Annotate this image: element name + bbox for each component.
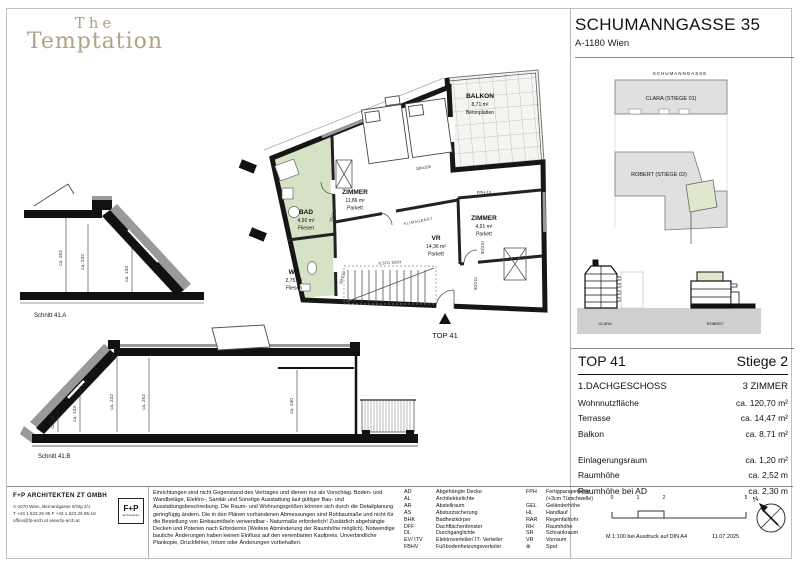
highlighted-floor <box>697 272 723 281</box>
room-area-wc: 2,75 m² <box>286 278 303 284</box>
legend-desc: Geländerhöhe <box>546 503 602 510</box>
legend-row: ADAbgehängte Decke <box>404 489 542 496</box>
room-label-bad: BAD <box>299 209 313 216</box>
firm-logo-sub: architekten <box>119 513 143 517</box>
dim-label: ca. 133 <box>72 406 78 422</box>
legend-abbr: AL <box>404 496 436 503</box>
neighbor-outline <box>621 272 643 308</box>
info-label: Wohnnutzfläche <box>578 398 639 408</box>
firm-block-divider <box>148 487 149 559</box>
fph-label: FPH-10 <box>477 190 492 195</box>
legend-desc: Fertigparapethöhe (+3cm Türschwelle) <box>546 489 602 503</box>
firm-block: F+P ARCHITEKTEN ZT GMBH A-1070 Wien, Ber… <box>13 492 146 524</box>
door-size-entry: 90/210 <box>473 277 478 290</box>
balcony-railing <box>360 400 416 434</box>
room-area-balkon: 8,71 m² <box>472 102 489 108</box>
scale-tick: 1 <box>637 495 640 501</box>
project-title: SCHUMANNGASSE 35 <box>575 15 794 35</box>
legend-row: ⊗Spot <box>526 544 602 551</box>
legend-row: SRSchrankraum <box>526 530 602 537</box>
legend-row: ARAbstellraum <box>404 503 542 510</box>
legend-abbr: GEL <box>526 503 546 510</box>
disclaimer-text: Einrichtungen sind nicht Gegenstand des … <box>153 490 396 548</box>
unit-label-plan: TOP 41 <box>432 331 458 340</box>
legend-abbr: RH <box>526 524 546 531</box>
legend-column-1: ADAbgehängte Decke ALArchitekturlichte A… <box>404 489 542 551</box>
elevation-clara <box>585 260 621 308</box>
legend-abbr: FBHV <box>404 544 436 551</box>
street-label: SCHUMANNGASSE <box>653 71 708 76</box>
building-clara: CLARA (STIEGE 01) <box>615 80 727 114</box>
unit-number: TOP 41 <box>578 353 626 369</box>
legend-row: RHRaumhöhe <box>526 524 602 531</box>
legend-desc: Regenfallrohr <box>546 517 602 524</box>
info-label: Balkon <box>578 429 604 439</box>
scale-tick: 2 <box>663 495 666 501</box>
scale-note: M 1:100 bei Ausdruck auf DIN A4 <box>606 534 687 540</box>
legend-row: EV/ ITVElektroverteiler/ IT- Verteiler <box>404 537 542 544</box>
dim-label: ca. 133 <box>124 266 130 282</box>
legend-row: ASAbsturzsicherung <box>404 510 542 517</box>
unit-info-panel: TOP 41 Stiege 2 1.DACHGESCHOSS 3 ZIMMER … <box>578 353 788 496</box>
room-label-vr: VR <box>431 235 440 242</box>
legend-abbr: AR <box>404 503 436 510</box>
plan-date: 11.07.2025 <box>712 534 739 540</box>
legend-column-2: FPHFertigparapethöhe (+3cm Türschwelle) … <box>526 489 602 551</box>
room-floor-bad: Fliesen <box>298 226 314 232</box>
elevation-clara-label: CLARA <box>598 321 612 326</box>
room-area-zimmer2: 4,91 m² <box>476 224 493 230</box>
legend-abbr: AD <box>404 489 436 496</box>
firm-logo: F+P architekten <box>118 498 144 524</box>
room-area-vr: 14,36 m² <box>426 244 446 250</box>
legend-desc: Handlauf <box>546 510 602 517</box>
legend-abbr: EV/ ITV <box>404 537 436 544</box>
section-b-caption: Schnitt 41.B <box>38 454 70 460</box>
floor-label: 1.DACHGESCHOSS <box>578 381 667 392</box>
door-size-zimmer: 80/210 <box>480 241 485 254</box>
room-floor-balkon: Betonplatten <box>466 110 494 116</box>
room-count: 3 ZIMMER <box>743 381 788 392</box>
dim-label: ca. 230 <box>289 398 295 414</box>
legend-abbr: HL <box>526 510 546 517</box>
legend-desc: Vorraum <box>546 537 602 544</box>
room-floor-wc: Fliesen <box>286 286 302 292</box>
scale-bar: 0 1 2 5 <box>600 490 760 524</box>
pillar <box>239 159 257 173</box>
legend-desc: Raumhöhe <box>546 524 602 531</box>
elevation-robert <box>691 272 755 308</box>
legend-desc: Spot <box>546 544 602 551</box>
info-value: ca. 1,20 m² <box>745 455 788 465</box>
elevation-robert-label: ROBERT <box>707 321 724 326</box>
project-address: A-1180 Wien <box>575 38 794 49</box>
project-header: SCHUMANNGASSE 35 A-1180 Wien <box>575 15 794 58</box>
site-plan: SCHUMANNGASSE CLARA (STIEGE 01) ROBERT (… <box>575 66 793 244</box>
room-floor-vr: Parkett <box>428 252 444 258</box>
room-label-zimmer1: ZIMMER <box>342 189 368 196</box>
info-value: ca. 120,70 m² <box>736 398 788 408</box>
floor-plan-drawing: BALKON 8,71 m² Betonplatten RAR Ø <box>232 62 570 354</box>
legend-row: GELGeländerhöhe <box>526 503 602 510</box>
info-row: Wohnnutzfläche ca. 120,70 m² <box>578 398 788 408</box>
section-b-drawing: ca. 60 ca. 133 ca. 232 ca. 252 ca. 230 S… <box>10 322 430 462</box>
entry-triangle-icon <box>439 313 451 324</box>
scale-tick: 0 <box>611 495 614 501</box>
info-label: Raumhöhe <box>578 470 620 480</box>
room-area-bad: 4,90 m² <box>298 218 315 224</box>
brand-logo: The Temptation <box>14 14 176 54</box>
north-label: N <box>752 495 759 503</box>
legend-row: VRVorraum <box>526 537 602 544</box>
dim-label: ca. 252 <box>141 394 147 410</box>
info-value: ca. 14,47 m² <box>741 413 788 423</box>
info-value: ca. 2,52 m <box>748 470 788 480</box>
section-a-caption: Schnitt 41.A <box>34 313 66 319</box>
firm-logo-main: F+P <box>119 504 143 513</box>
info-row: Balkon ca. 8,71 m² <box>578 429 788 439</box>
legend-abbr: SR <box>526 530 546 537</box>
info-label: Einlagerungsraum <box>578 455 647 465</box>
legend-abbr: DL <box>404 530 436 537</box>
north-compass-icon: N <box>750 492 790 538</box>
legend-abbr: FPH <box>526 489 546 503</box>
legend-abbr: AS <box>404 510 436 517</box>
building-robert-label: ROBERT (STIEGE 02) <box>631 172 687 178</box>
plan-sheet: The Temptation SCHUMANNGASSE 35 A-1180 W… <box>0 0 800 566</box>
legend-row: DLDurchganglichte <box>404 530 542 537</box>
legend-row: RARRegenfallrohr <box>526 517 602 524</box>
legend-row: ALArchitekturlichte <box>404 496 542 503</box>
dim-label: ca. 232 <box>109 394 115 410</box>
info-panel-top-rule <box>571 348 794 349</box>
room-floor-zimmer1: Parkett <box>347 206 363 212</box>
room-area-zimmer1: 11,86 m² <box>345 198 365 204</box>
stiege-label: Stiege 2 <box>737 353 788 369</box>
room-floor-zimmer2: Parkett <box>476 232 492 238</box>
right-column-divider <box>570 8 571 559</box>
legend-abbr: BHK <box>404 517 436 524</box>
info-row: Raumhöhe ca. 2,52 m <box>578 470 788 480</box>
legend-abbr: DFF <box>404 524 436 531</box>
legend-row: FBHVFußbodenheizungsverteiler <box>404 544 542 551</box>
legend-desc: Schrankraum <box>546 530 602 537</box>
legend-abbr: VR <box>526 537 546 544</box>
room-label-wc: WC <box>289 269 300 276</box>
spot-symbol: ⊗ <box>526 544 546 551</box>
brand-logo-line2: Temptation <box>14 29 176 54</box>
legend-row: BHKBadheizkörper <box>404 517 542 524</box>
scale-tick: 5 <box>745 495 748 501</box>
legend-row: DFFDachflächenfenster <box>404 524 542 531</box>
building-robert: ROBERT (STIEGE 02) <box>615 152 727 244</box>
legend-row: FPHFertigparapethöhe (+3cm Türschwelle) <box>526 489 602 503</box>
section-a-drawing: ca. 252 ca. 232 ca. 133 Schnitt 41.A <box>8 172 218 322</box>
dim-label: ca. 60 <box>50 415 56 428</box>
info-value: ca. 8,71 m² <box>745 429 788 439</box>
info-row: Einlagerungsraum ca. 1,20 m² <box>578 455 788 465</box>
room-label-zimmer2: ZIMMER <box>471 215 497 222</box>
dim-label: ca. 232 <box>80 254 86 270</box>
info-label: Terrasse <box>578 413 611 423</box>
legend-row: HLHandlauf <box>526 510 602 517</box>
info-row: Terrasse ca. 14,47 m² <box>578 413 788 423</box>
legend-abbr: RAR <box>526 517 546 524</box>
building-clara-label: CLARA (STIEGE 01) <box>645 96 696 102</box>
pillar <box>249 227 267 241</box>
highlighted-unit <box>686 180 717 212</box>
elevation-diagram: CLARA ROBERT <box>575 244 793 348</box>
room-label-balkon: BALKON <box>466 93 494 100</box>
dim-label: ca. 252 <box>58 250 64 266</box>
